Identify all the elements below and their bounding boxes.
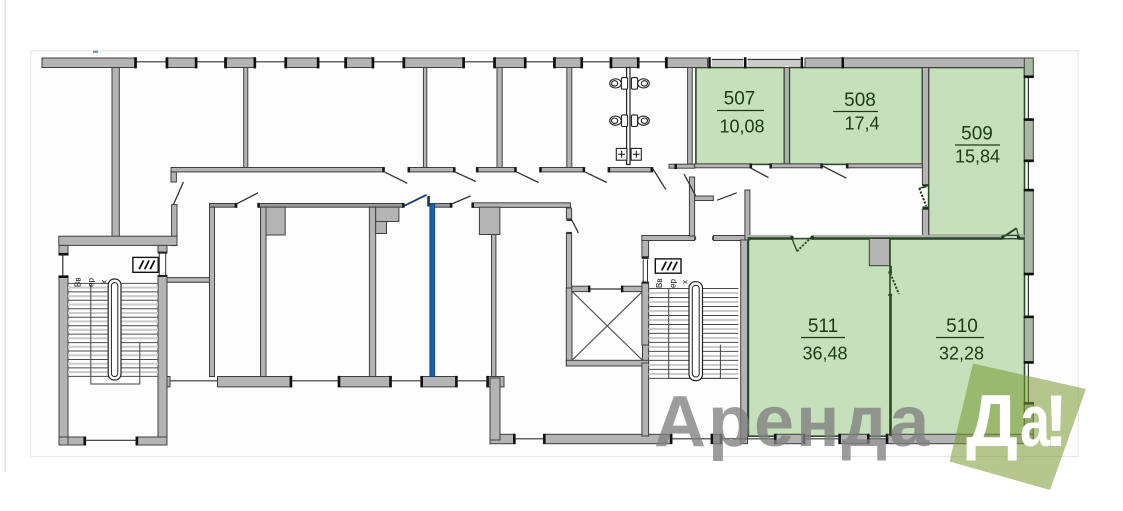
svg-text:ер: ер (87, 278, 96, 287)
svg-text:10,08: 10,08 (719, 117, 764, 137)
svg-text:Аренда: Аренда (654, 382, 931, 462)
svg-text:509: 509 (961, 124, 993, 145)
svg-text:!: ! (1044, 381, 1068, 462)
svg-text:510: 510 (946, 316, 978, 337)
svg-text:511: 511 (808, 316, 838, 337)
svg-text:Д: Д (966, 381, 1018, 462)
svg-text:32,28: 32,28 (939, 344, 984, 364)
svg-text:508: 508 (844, 90, 876, 111)
svg-text:15,84: 15,84 (955, 147, 1000, 167)
svg-text:Вв: Вв (74, 277, 83, 287)
svg-text:Вв: Вв (655, 278, 664, 288)
svg-text:36,48: 36,48 (802, 344, 847, 364)
svg-text:17,4: 17,4 (844, 114, 879, 134)
svg-text:507: 507 (724, 89, 756, 110)
svg-text:х: х (681, 280, 690, 284)
svg-text:х: х (100, 280, 109, 284)
svg-text:ер: ер (669, 279, 678, 288)
